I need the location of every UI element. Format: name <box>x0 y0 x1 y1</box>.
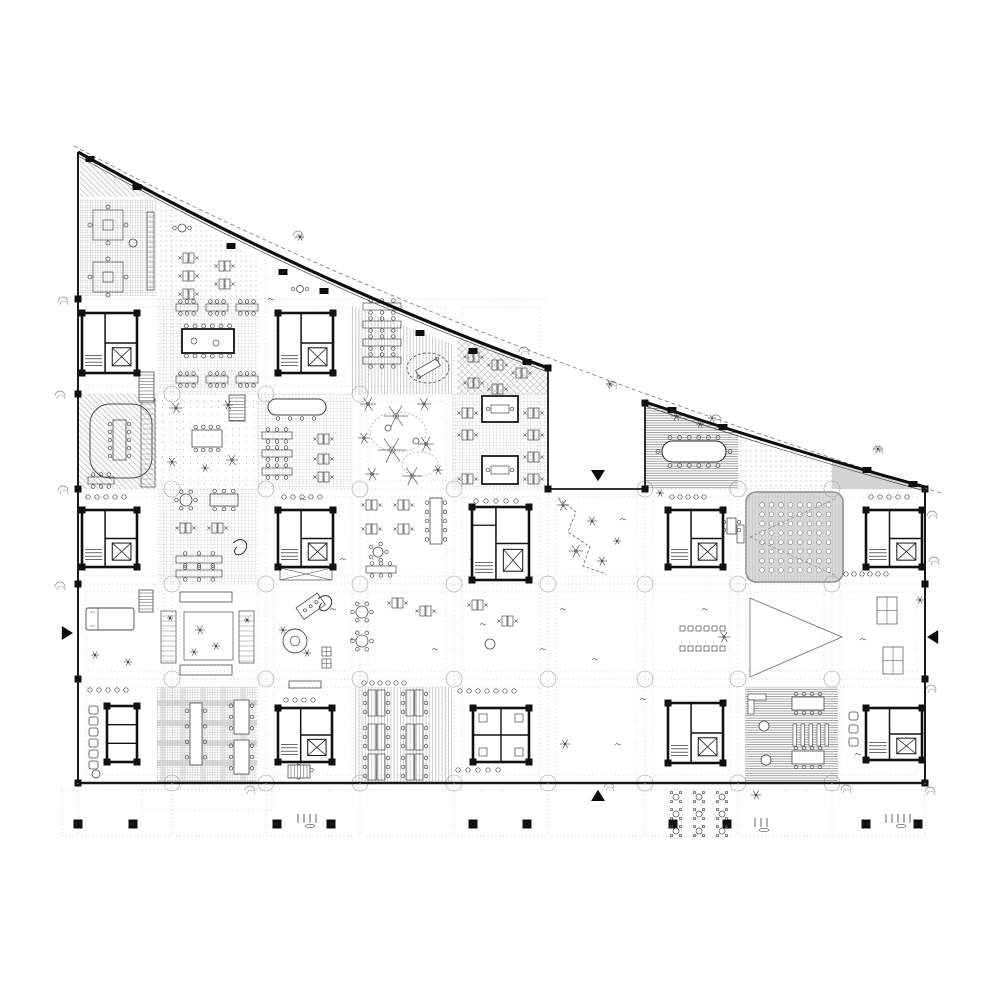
terrace-table <box>716 791 727 802</box>
table <box>229 700 254 734</box>
terrace-table <box>693 825 704 836</box>
round-table <box>759 721 769 731</box>
tree <box>613 538 621 545</box>
round-table <box>485 639 495 649</box>
table <box>229 740 254 774</box>
desk-pair <box>387 598 407 608</box>
module-bench-office <box>352 306 452 394</box>
bush <box>55 391 65 399</box>
tree <box>124 659 132 666</box>
plaza-column <box>74 820 83 829</box>
tree <box>718 632 730 643</box>
chair-row <box>362 681 406 685</box>
chair-row <box>88 688 128 692</box>
speck-mark <box>268 298 274 300</box>
desk-pair <box>361 524 381 534</box>
desk-pair <box>361 500 381 510</box>
module-workshop-room <box>80 199 157 296</box>
plaza-column <box>914 820 923 829</box>
speck-mark <box>592 658 598 660</box>
bush <box>925 787 935 795</box>
section-marker-down <box>591 470 605 481</box>
tree <box>433 466 443 475</box>
round-table <box>291 286 309 293</box>
stair-core <box>104 703 141 766</box>
ring-sofa <box>283 629 307 653</box>
tree <box>360 397 376 411</box>
planting-bed <box>402 452 438 476</box>
stairs <box>288 765 310 778</box>
tree <box>212 643 220 650</box>
stairs <box>229 395 245 421</box>
plaza-column <box>469 820 478 829</box>
floor-plan-svg <box>0 0 1000 1000</box>
tree <box>190 649 198 656</box>
stair-core <box>275 705 336 766</box>
round-table <box>351 602 374 622</box>
tree <box>378 438 406 463</box>
speck-mark <box>540 648 546 650</box>
terrace-table <box>716 808 727 819</box>
stair-core <box>665 700 727 767</box>
stairs <box>139 590 153 612</box>
pane-table <box>322 659 331 668</box>
armchair-column <box>849 712 858 746</box>
chair-row <box>458 689 516 693</box>
bush <box>58 297 68 305</box>
section-marker-left <box>927 630 938 644</box>
desk-pair <box>497 616 517 626</box>
desk-pair <box>393 500 413 510</box>
winding-path <box>558 498 606 574</box>
tree <box>751 791 761 800</box>
bike-rack <box>298 814 316 828</box>
tree <box>402 467 422 485</box>
plaza-column <box>523 820 532 829</box>
stair-core <box>79 507 141 571</box>
ground-plaza-layer <box>62 783 925 837</box>
desk-pair <box>415 606 435 616</box>
chair-square-row <box>680 626 725 631</box>
bush <box>55 582 65 590</box>
round-table <box>369 542 388 562</box>
speck-mark <box>340 558 346 560</box>
speck-mark <box>860 638 866 640</box>
speck-mark <box>480 623 486 625</box>
tree <box>597 557 607 566</box>
pane-table <box>883 647 903 674</box>
plaza-column <box>723 820 732 829</box>
plaza-column <box>273 820 282 829</box>
round-table <box>351 631 374 651</box>
desk-pair <box>393 524 413 534</box>
module-corner-office <box>457 336 548 394</box>
stair-core <box>79 310 141 377</box>
speck-mark <box>855 753 861 755</box>
armchair-column <box>89 706 98 769</box>
speck-mark <box>620 518 626 520</box>
chair-row <box>284 698 315 702</box>
floor-plan-page <box>0 0 1000 1000</box>
plaza-column <box>862 820 871 829</box>
stair-core <box>275 507 337 571</box>
bike-rack <box>886 814 910 828</box>
terrace-table <box>693 808 704 819</box>
terrace-table <box>670 791 681 802</box>
tree <box>587 517 597 526</box>
speck-mark <box>560 608 566 610</box>
stair-core <box>469 504 533 584</box>
pane-table <box>877 597 897 624</box>
tree <box>418 437 434 451</box>
chair-square-row <box>680 646 725 651</box>
tree <box>195 626 205 635</box>
speck-mark <box>702 608 708 610</box>
vehicle <box>86 608 134 630</box>
round-table <box>385 425 391 431</box>
bush <box>929 557 939 565</box>
speck-mark <box>330 608 336 610</box>
stair-core <box>863 705 926 764</box>
bike-rack <box>755 818 769 832</box>
tree <box>279 627 287 634</box>
tree <box>303 650 311 657</box>
speck-mark <box>300 498 306 500</box>
bush <box>873 446 883 454</box>
bush <box>58 486 68 494</box>
stair-core <box>863 507 926 571</box>
round-table <box>92 770 100 778</box>
terrace-table <box>693 791 704 802</box>
table <box>180 592 232 602</box>
tree <box>384 406 408 427</box>
door-swing-motif <box>446 671 462 687</box>
tree <box>656 490 664 497</box>
area-rug <box>184 612 233 660</box>
pane-table <box>322 647 331 656</box>
meeting-room <box>482 396 518 422</box>
bush <box>245 786 255 794</box>
meeting-table <box>182 324 234 358</box>
section-marker-up <box>591 790 605 801</box>
tree <box>569 545 583 557</box>
module-open-upper-right <box>738 431 832 489</box>
meeting-room <box>482 456 518 484</box>
bush <box>841 785 851 793</box>
stair-core <box>665 507 727 571</box>
chair-row <box>474 499 518 503</box>
stair-core <box>275 310 337 377</box>
bush <box>926 685 936 693</box>
stairs <box>139 372 154 402</box>
x-brace <box>280 568 332 580</box>
door-swing-motif <box>446 576 462 592</box>
table <box>425 498 447 544</box>
chair-row <box>456 768 500 772</box>
tree <box>417 398 431 410</box>
chair-row <box>844 572 888 576</box>
round-table <box>413 438 419 444</box>
terrace-table <box>670 808 681 819</box>
plaza-column <box>327 820 336 829</box>
bush <box>607 381 617 389</box>
projection-triangle <box>750 598 842 677</box>
desk-pair <box>467 600 487 610</box>
round-table <box>761 755 771 765</box>
bench-desk <box>366 562 396 578</box>
table <box>180 665 232 675</box>
tree <box>244 617 250 622</box>
plaza-column <box>129 820 138 829</box>
plaza-column <box>669 820 678 829</box>
module-open-office-upper <box>157 200 257 299</box>
speck-mark <box>432 648 438 650</box>
bush <box>927 511 937 519</box>
shelf-unit <box>161 611 176 663</box>
tree <box>560 740 570 749</box>
tree <box>91 652 99 659</box>
tree <box>365 468 379 480</box>
speck-mark <box>615 743 621 745</box>
stair-core <box>470 705 533 766</box>
section-marker-right <box>62 626 73 640</box>
